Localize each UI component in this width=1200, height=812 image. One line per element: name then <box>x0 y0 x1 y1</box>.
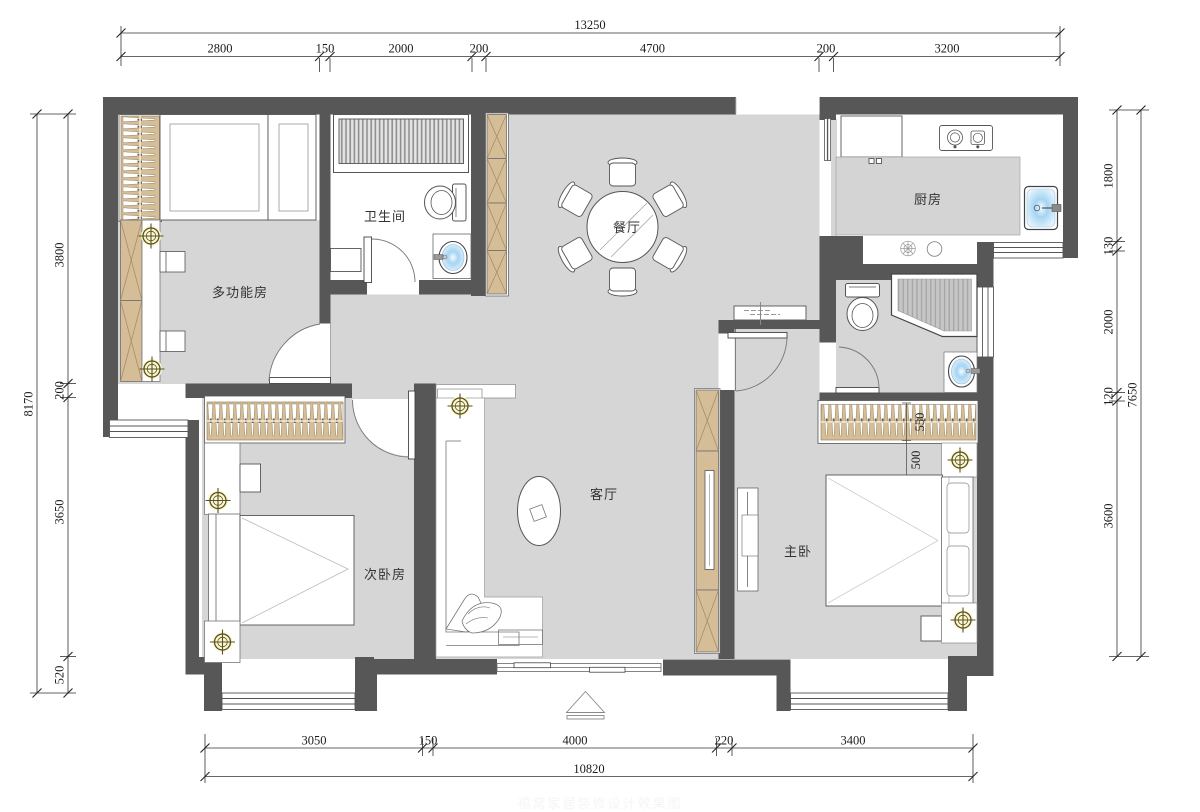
svg-text:550: 550 <box>913 413 927 432</box>
svg-text:220: 220 <box>715 734 734 748</box>
svg-text:多功能房: 多功能房 <box>212 285 268 300</box>
svg-text:520: 520 <box>53 666 67 685</box>
svg-text:3650: 3650 <box>53 500 67 525</box>
svg-text:3050: 3050 <box>302 734 327 748</box>
svg-text:200: 200 <box>470 42 489 56</box>
svg-text:福窝家居装修设计效果图: 福窝家居装修设计效果图 <box>517 796 682 811</box>
svg-text:130: 130 <box>1102 237 1116 256</box>
svg-text:卫生间: 卫生间 <box>364 209 406 224</box>
svg-text:主卧: 主卧 <box>784 544 812 559</box>
svg-text:次卧房: 次卧房 <box>364 567 406 582</box>
svg-text:8170: 8170 <box>22 392 36 417</box>
svg-text:厨房: 厨房 <box>914 192 942 207</box>
svg-text:10820: 10820 <box>573 762 604 776</box>
svg-text:3800: 3800 <box>53 243 67 268</box>
svg-text:2000: 2000 <box>1102 310 1116 335</box>
svg-text:2000: 2000 <box>389 42 414 56</box>
svg-text:1800: 1800 <box>1102 164 1116 189</box>
svg-text:3600: 3600 <box>1102 504 1116 529</box>
svg-text:4000: 4000 <box>563 734 588 748</box>
svg-text:200: 200 <box>53 381 67 400</box>
svg-text:4700: 4700 <box>640 42 665 56</box>
svg-text:3400: 3400 <box>841 734 866 748</box>
svg-text:500: 500 <box>909 451 923 470</box>
svg-text:客厅: 客厅 <box>590 487 618 502</box>
svg-text:2800: 2800 <box>208 42 233 56</box>
svg-text:餐厅: 餐厅 <box>613 220 641 235</box>
svg-text:7650: 7650 <box>1126 383 1140 408</box>
svg-text:13250: 13250 <box>574 18 605 32</box>
svg-text:120: 120 <box>1102 387 1116 406</box>
svg-text:150: 150 <box>419 734 438 748</box>
svg-text:3200: 3200 <box>935 42 960 56</box>
svg-text:200: 200 <box>817 42 836 56</box>
svg-text:150: 150 <box>316 42 335 56</box>
